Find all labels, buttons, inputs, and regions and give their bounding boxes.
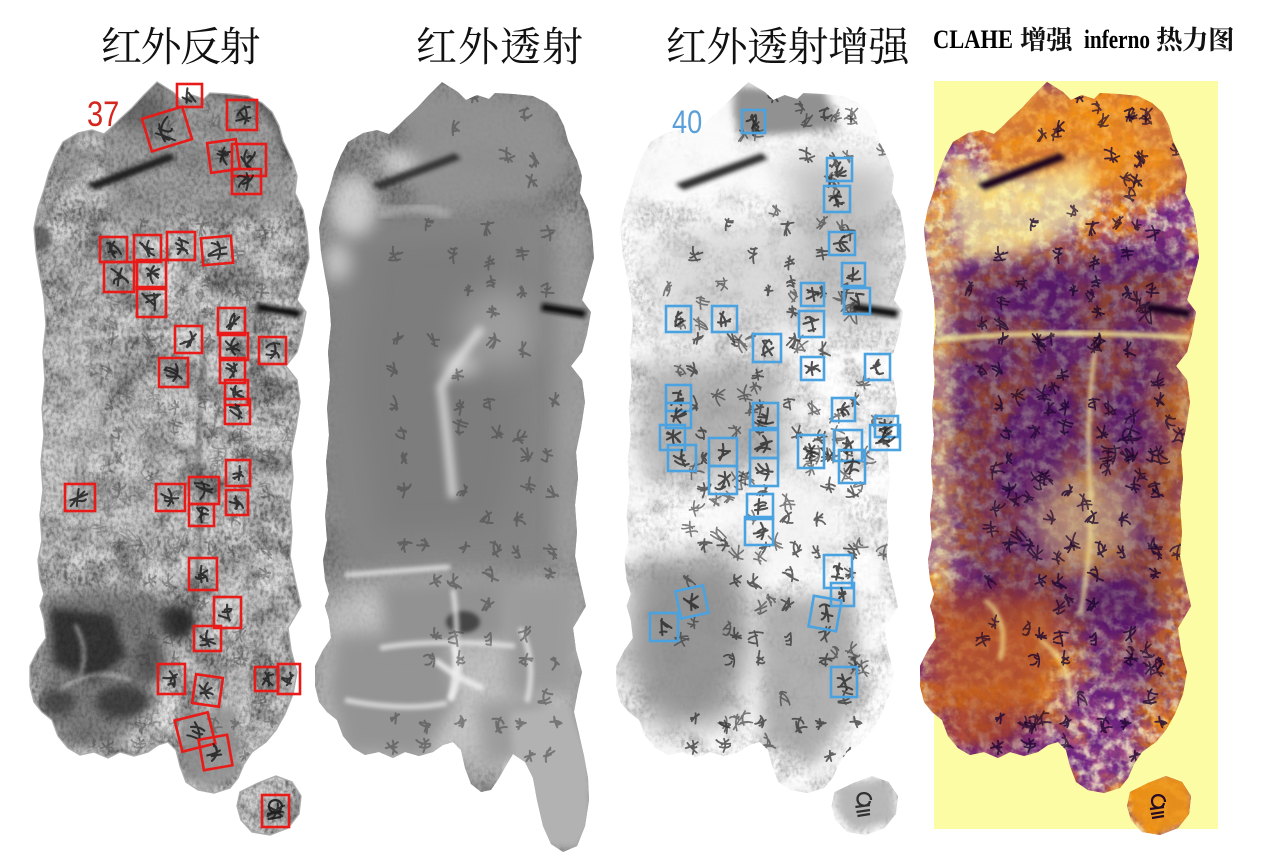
svg-text:inferno: inferno — [1084, 25, 1150, 54]
svg-text:CLAHE: CLAHE — [933, 25, 1013, 54]
svg-text:40: 40 — [672, 105, 702, 141]
svg-text:37: 37 — [87, 94, 119, 133]
